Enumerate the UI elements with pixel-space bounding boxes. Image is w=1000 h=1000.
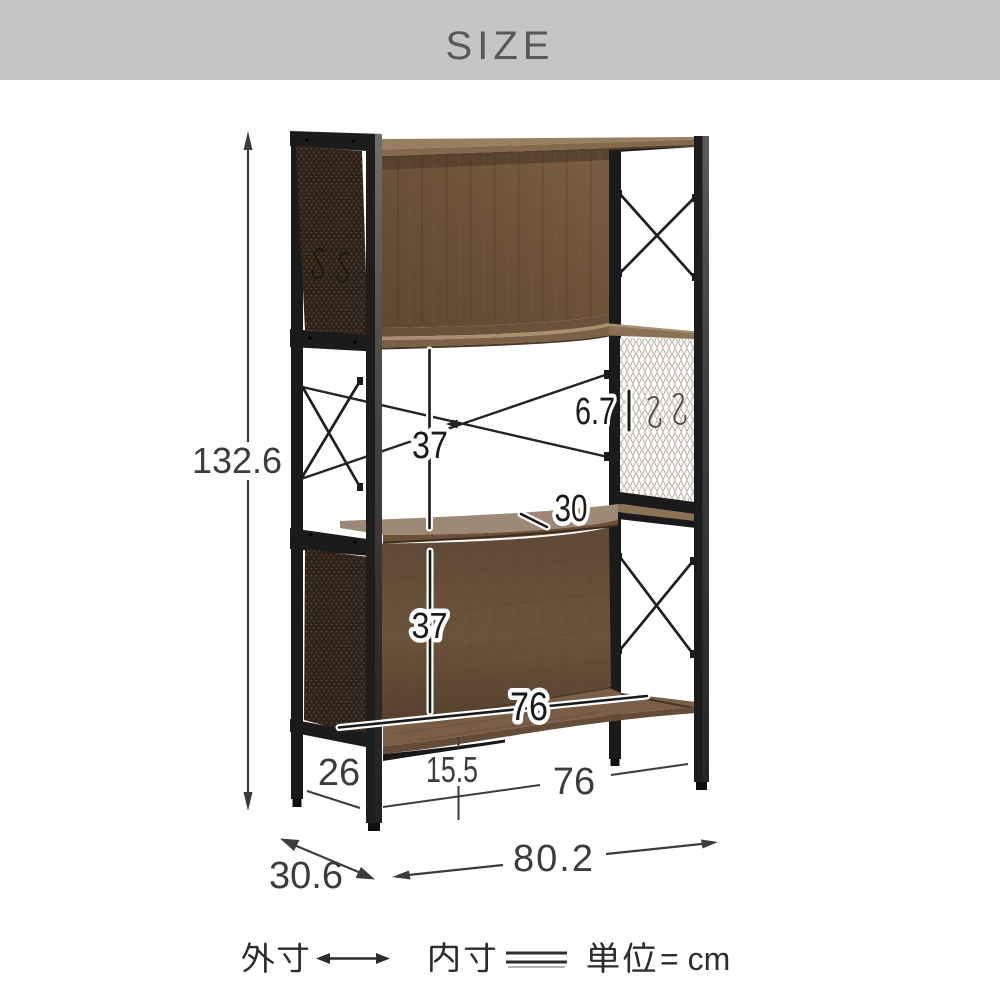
svg-text:80.2: 80.2 [513, 838, 595, 880]
svg-text:= cm: = cm [660, 941, 730, 977]
svg-text:37: 37 [412, 425, 448, 467]
svg-text:37: 37 [412, 605, 448, 646]
svg-text:30: 30 [555, 488, 588, 530]
svg-text:15.5: 15.5 [426, 749, 478, 790]
svg-text:SIZE: SIZE [446, 24, 555, 68]
svg-text:76: 76 [510, 685, 548, 729]
svg-text:6.7: 6.7 [575, 391, 615, 433]
svg-text:132.6: 132.6 [192, 440, 282, 481]
svg-text:26: 26 [318, 752, 360, 794]
svg-text:30.6: 30.6 [269, 855, 343, 897]
svg-text:76: 76 [553, 761, 595, 803]
